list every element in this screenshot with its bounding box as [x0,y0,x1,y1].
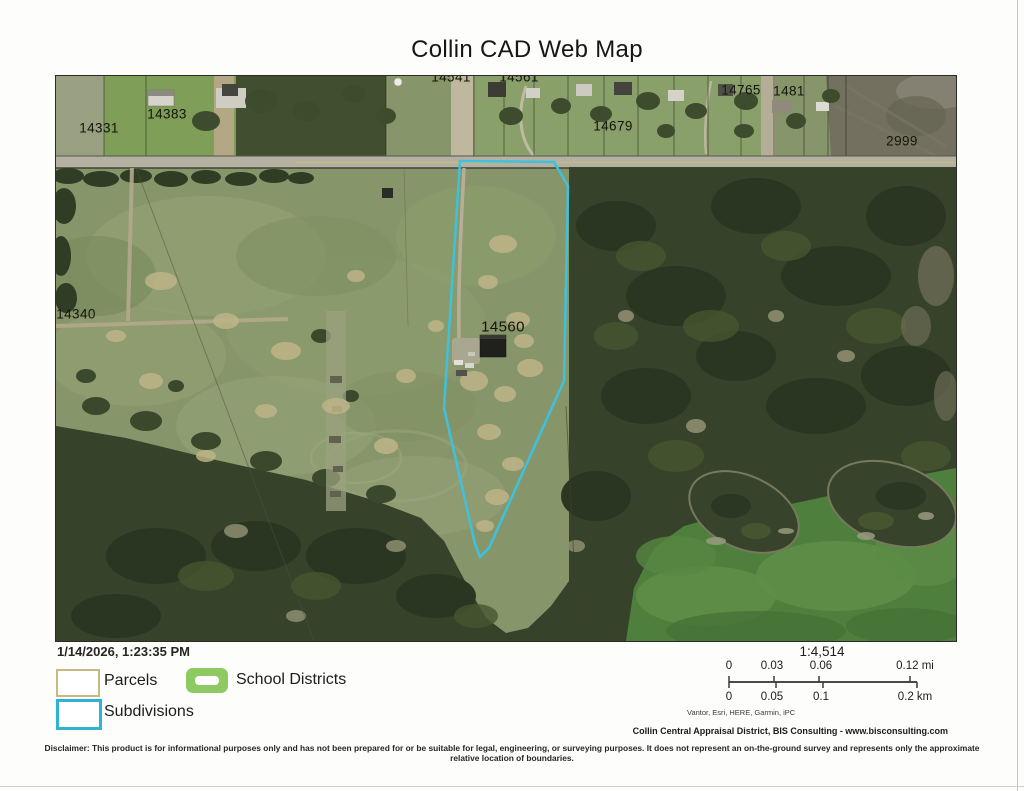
scale-km-tick-2: 0.1 [813,691,829,703]
parcels-swatch [56,669,100,697]
school-districts-swatch [186,668,228,693]
credit-line: Collin Central Appraisal District, BIS C… [633,726,948,736]
parcel-label-1481: 1481 [773,84,805,99]
parcel-label-14331: 14331 [79,121,119,136]
map-canvas[interactable]: 1433114383145411456114679147651481299914… [55,75,957,642]
parcel-label-14541: 14541 [431,75,471,85]
parcel-label-14561: 14561 [499,75,539,85]
subdivisions-swatch [56,699,102,730]
map-attribution: Vantor, Esri, HERE, Garmin, iPC [687,708,795,717]
scale-mi-tick-3: 0.12 mi [896,660,934,672]
parcel-label-14340: 14340 [56,307,96,322]
scale-mi-tick-2: 0.06 [810,660,832,672]
scale-mi-tick-0: 0 [726,660,732,672]
scale-km-tick-1: 0.05 [761,691,783,703]
parcel-label-14383: 14383 [147,107,187,122]
parcel-label-2999: 2999 [886,134,918,149]
legend-label-school-districts: School Districts [236,671,346,689]
parcel-label-14560: 14560 [481,319,525,336]
scale-bar-line [685,675,955,689]
scale-km-tick-0: 0 [726,691,732,703]
scan-edge-right [1017,0,1018,791]
scan-edge-bottom [0,786,1024,787]
parcel-label-14679: 14679 [593,119,633,134]
legend-label-subdivisions: Subdivisions [104,703,194,721]
school-districts-swatch-inner [195,676,219,685]
scale-mi-tick-1: 0.03 [761,660,783,672]
timestamp: 1/14/2026, 1:23:35 PM [57,644,190,659]
map-labels: 1433114383145411456114679147651481299914… [56,76,956,641]
legend-label-parcels: Parcels [104,672,157,690]
scale-ratio: 1:4,514 [799,644,844,659]
printed-map-page: Collin CAD Web Map [0,0,1024,791]
parcel-label-14765: 14765 [721,83,761,98]
scale-bar: 1:4,514 0 0.03 0.06 0.12 mi 0 0.05 0.1 0… [685,644,955,724]
scale-km-tick-3: 0.2 km [898,691,933,703]
disclaimer-text: Disclaimer: This product is for informat… [40,743,984,763]
page-title: Collin CAD Web Map [411,36,643,64]
